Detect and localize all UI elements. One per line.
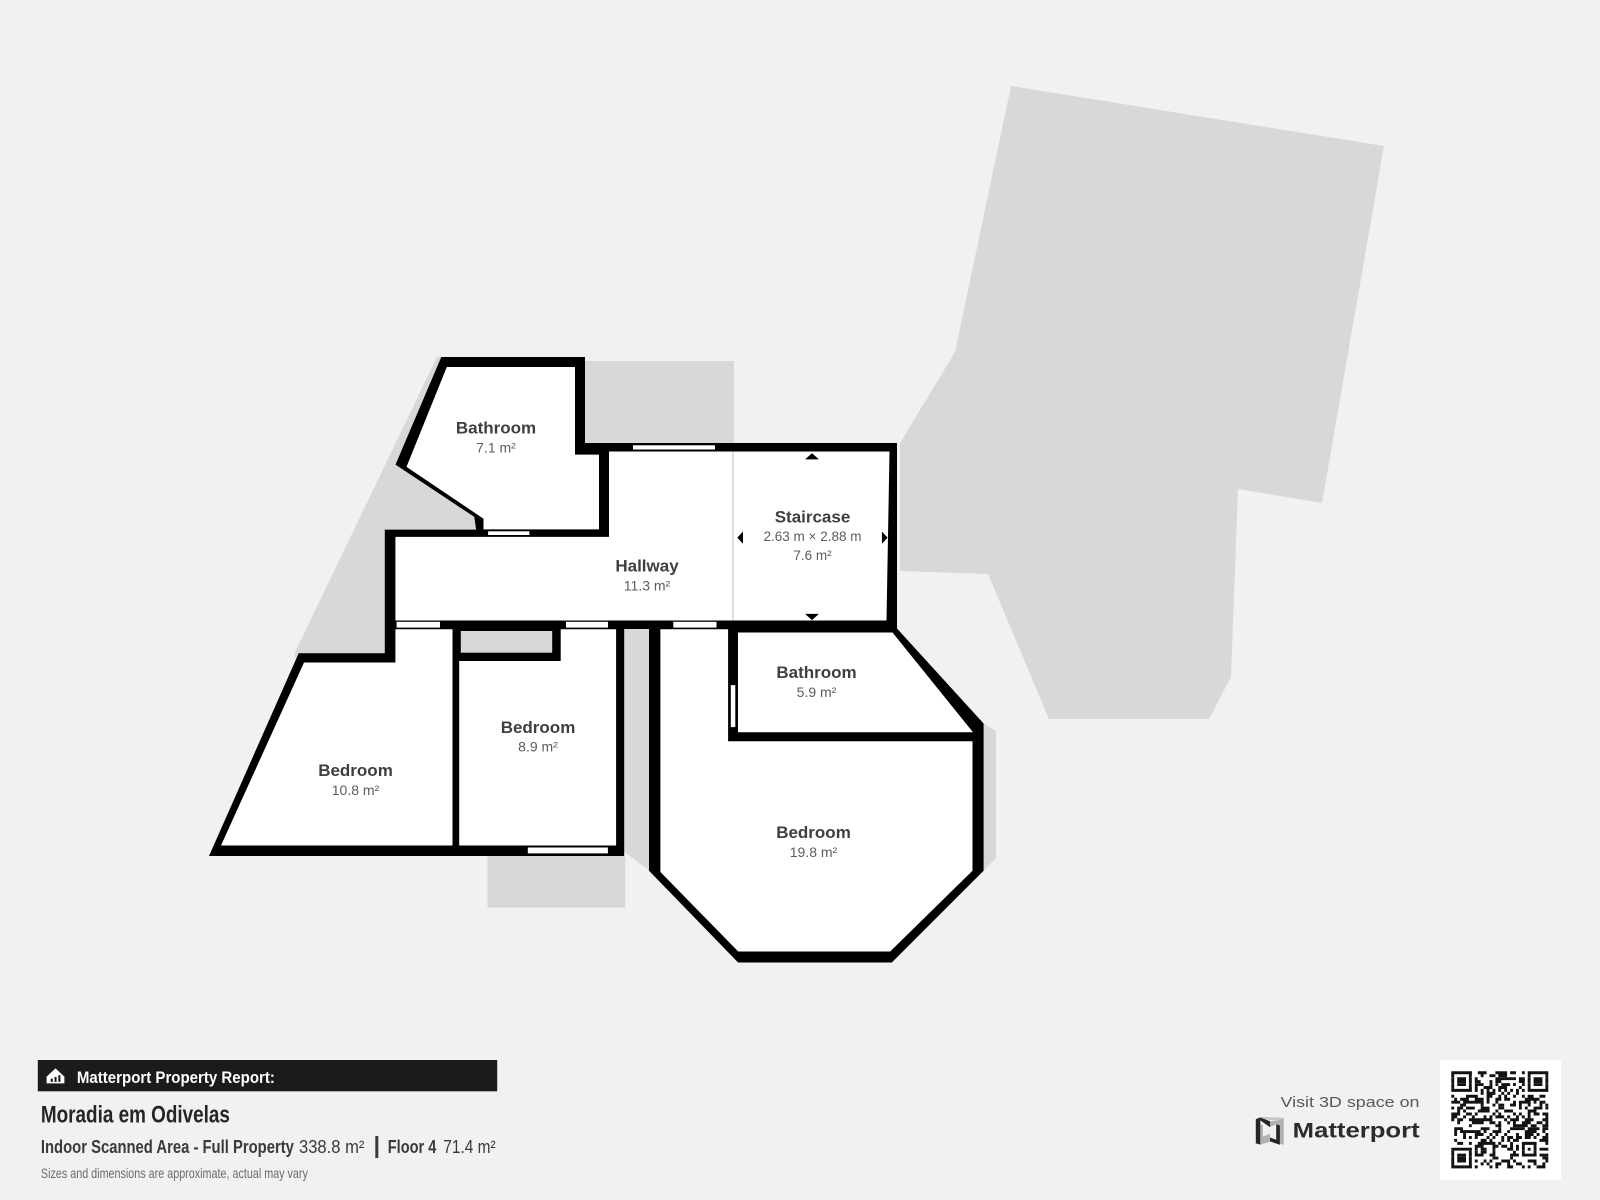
svg-text:Sizes and dimensions are appro: Sizes and dimensions are approximate, ac… — [41, 1165, 308, 1181]
svg-text:19.8 m²: 19.8 m² — [790, 844, 838, 860]
svg-text:10.8 m²: 10.8 m² — [332, 782, 380, 798]
svg-text:7.6 m²: 7.6 m² — [793, 548, 832, 563]
svg-text:Indoor Scanned Area - Full Pro: Indoor Scanned Area - Full Property — [41, 1137, 294, 1157]
svg-text:Matterport: Matterport — [1293, 1119, 1420, 1143]
svg-text:8.9 m²: 8.9 m² — [518, 739, 558, 755]
svg-text:Bathroom: Bathroom — [456, 419, 536, 438]
svg-text:11.3 m²: 11.3 m² — [624, 577, 671, 593]
svg-text:Bedroom: Bedroom — [776, 823, 851, 842]
svg-text:Matterport Property Report:: Matterport Property Report: — [77, 1068, 275, 1087]
svg-text:5.9 m²: 5.9 m² — [797, 684, 837, 700]
svg-text:Bathroom: Bathroom — [776, 663, 856, 682]
svg-text:Floor 4: Floor 4 — [388, 1137, 437, 1157]
svg-text:Hallway: Hallway — [615, 557, 679, 576]
svg-text:Moradia em Odivelas: Moradia em Odivelas — [41, 1102, 230, 1129]
svg-text:Visit 3D space on: Visit 3D space on — [1281, 1095, 1420, 1111]
svg-text:Staircase: Staircase — [775, 507, 851, 526]
svg-text:Bedroom: Bedroom — [501, 718, 576, 737]
svg-text:338.8 m²: 338.8 m² — [299, 1137, 364, 1157]
svg-text:7.1 m²: 7.1 m² — [476, 439, 516, 455]
svg-text:Bedroom: Bedroom — [318, 761, 393, 780]
svg-text:71.4 m²: 71.4 m² — [443, 1137, 495, 1157]
svg-text:2.63 m × 2.88 m: 2.63 m × 2.88 m — [764, 529, 862, 544]
